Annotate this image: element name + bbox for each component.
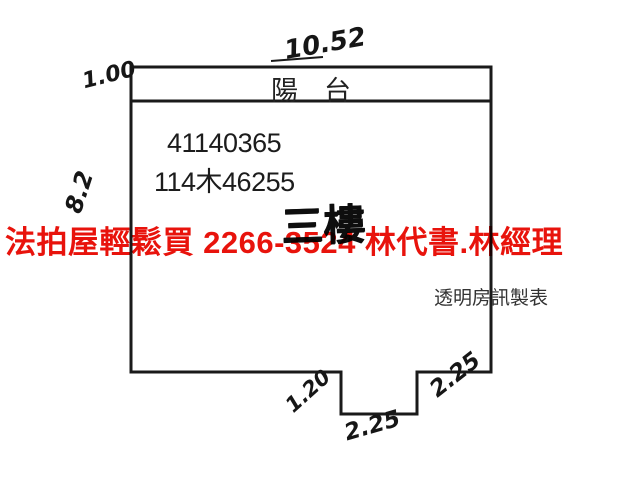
case-number-line1: 41140365 [167,128,281,159]
floorplan-page: 陽台 41140365 114木46255 三樓 透明房訊製表 10.52 1.… [0,0,640,480]
watermark-text: 法拍屋輕鬆買 2266-3524 林代書.林經理 [5,217,563,262]
balcony-label: 陽台 [130,69,492,108]
case-number-line2: 114木46255 [154,160,295,199]
publisher-label: 透明房訊製表 [434,283,548,310]
